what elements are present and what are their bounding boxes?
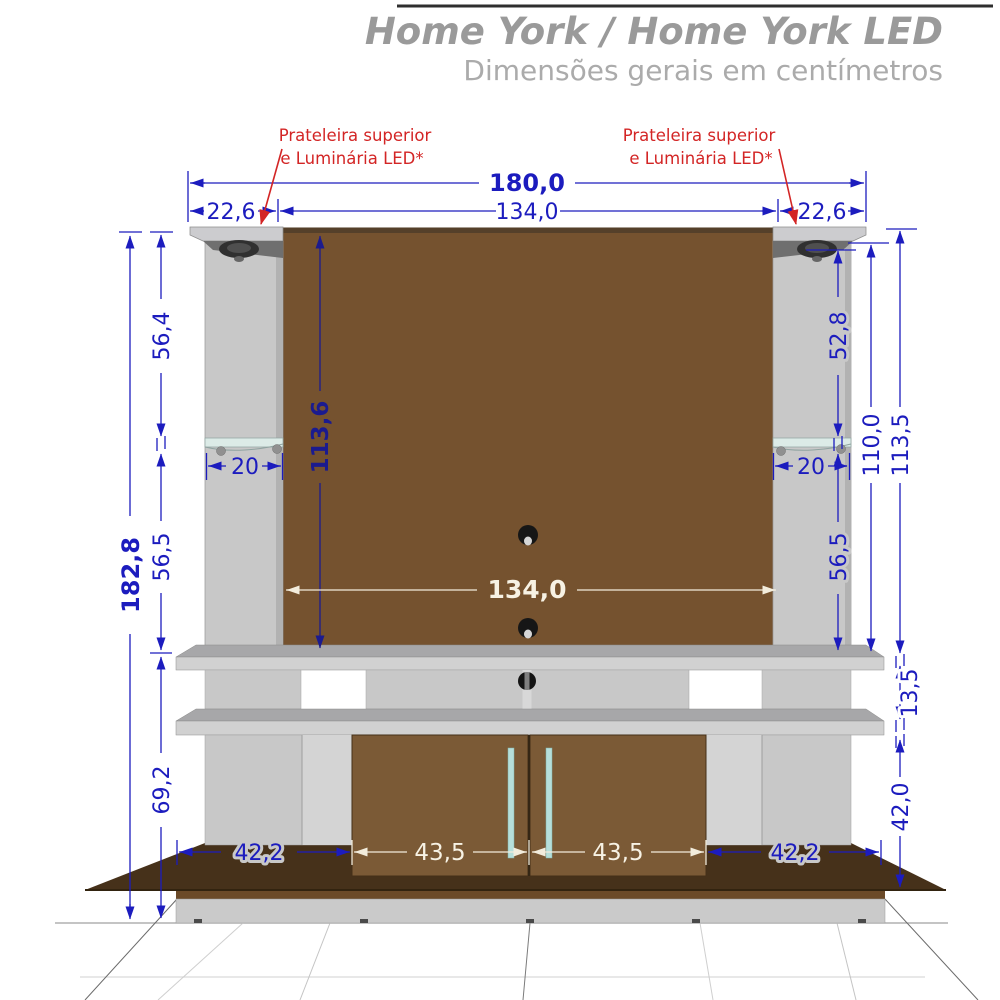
dim-bottom-width-chain: 42,2 43,5 43,5 42,2 [177,840,881,866]
dim-right-door-width: 43,5 [592,840,643,866]
dim-total-width: 180,0 [489,169,565,197]
lower-shelf-surface [176,709,884,721]
callout-left-line1: Prateleira superior [279,126,432,145]
cabinet-open-left [302,735,352,845]
dim-panel-height: 113,6 [308,401,334,474]
callout-left-arrow [261,149,282,224]
bench-shelves [176,645,884,735]
door-handle-left [508,748,514,858]
callout-right-arrow [779,149,796,224]
dim-left-upper-height: 56,4 [150,312,175,361]
base-deck-edge [176,890,885,899]
cabinet-base [85,735,946,923]
dim-left-height-chain: 182,8 56,4 56,5 69,2 [117,232,175,919]
dim-right-shelf-depth: 20 [797,455,825,480]
glass-shelf-left-pin [273,445,282,454]
led-spotlight-left-lens [227,243,251,253]
dim-top-width-chain: 180,0 22,6 134,0 22,6 [188,169,866,225]
plinth-foot [858,919,866,923]
dim-bottom-right-width: 42,2 [771,841,820,866]
floor-tile-line [85,899,177,1000]
glass-shelf-right-pin [837,445,846,454]
floor-tile-line [885,899,978,1000]
dim-right-lower-height: 56,5 [827,533,852,582]
floor-tile-line [523,923,530,1000]
lower-shelf-front [176,721,884,735]
cabinet-open-right [706,735,762,845]
dim-right-outer-total: 113,5 [889,414,914,477]
floor-tile-line [837,923,856,1000]
plinth-foot [194,919,202,923]
led-spotlight-right-lens [805,243,829,253]
dim-left-lower-height: 56,5 [150,533,175,582]
callout-left-line2: e Luminária LED* [280,149,423,168]
floor-tile-line [300,923,330,1000]
page-subtitle: Dimensões gerais em centímetros [463,54,943,87]
dim-shelf-spacing: 13,5 [898,669,923,718]
floor-tile-line [700,923,713,1000]
back-panel-top-edge [283,228,778,233]
led-spotlight-left-base [234,256,244,262]
dim-right-outer: 110,0 113,5 13,5 42,0 [848,229,923,887]
dim-top-panel-width: 134,0 [496,200,559,225]
dim-bottom-left-width: 42,2 [235,841,284,866]
callout-right: Prateleira superior e Luminária LED* [623,126,796,224]
cable-hole-lower-notch [524,630,532,639]
dimension-diagram-page: Home York / Home York LED Dimensões gera… [0,0,1000,1000]
callout-right-line1: Prateleira superior [623,126,776,145]
glass-shelf-left-pin [217,447,226,456]
floor-tile-line [158,923,243,1000]
dim-left-base-height: 69,2 [150,766,175,815]
led-spotlight-right-base [812,256,822,262]
bench-top-front [176,657,884,670]
header: Home York / Home York LED Dimensões gera… [365,6,993,87]
dim-total-height: 182,8 [117,537,145,613]
door-handle-right [546,748,552,858]
dim-left-top-depth: 22,6 [207,200,256,225]
plinth-foot [360,919,368,923]
glass-shelf-right-pin [777,447,786,456]
callout-left: Prateleira superior e Luminária LED* [261,126,431,224]
dim-left-door-width: 43,5 [414,840,465,866]
right-top-shelf [773,227,866,241]
plinth-foot [526,919,534,923]
bench-support-right [762,670,851,709]
dim-left-shelf-depth: 20 [231,455,259,480]
cable-hole-upper-notch [524,537,532,546]
bench-center-divider-front [525,670,530,709]
dim-mid-panel-width: 134,0 [487,575,566,604]
dim-right-top-depth: 22,6 [798,200,847,225]
plinth-foot [692,919,700,923]
page-title: Home York / Home York LED [365,10,943,53]
bench-support-left [205,670,301,709]
diagram-canvas: Home York / Home York LED Dimensões gera… [0,0,1000,1000]
left-top-shelf [190,227,283,241]
glass-shelf-left [205,438,283,447]
dim-right-upper-height: 52,8 [827,312,852,361]
dim-right-inner-total: 110,0 [860,414,885,477]
callout-right-line2: e Luminária LED* [629,149,772,168]
dim-right-base-height: 42,0 [889,783,914,832]
bench-top-surface [176,645,884,657]
